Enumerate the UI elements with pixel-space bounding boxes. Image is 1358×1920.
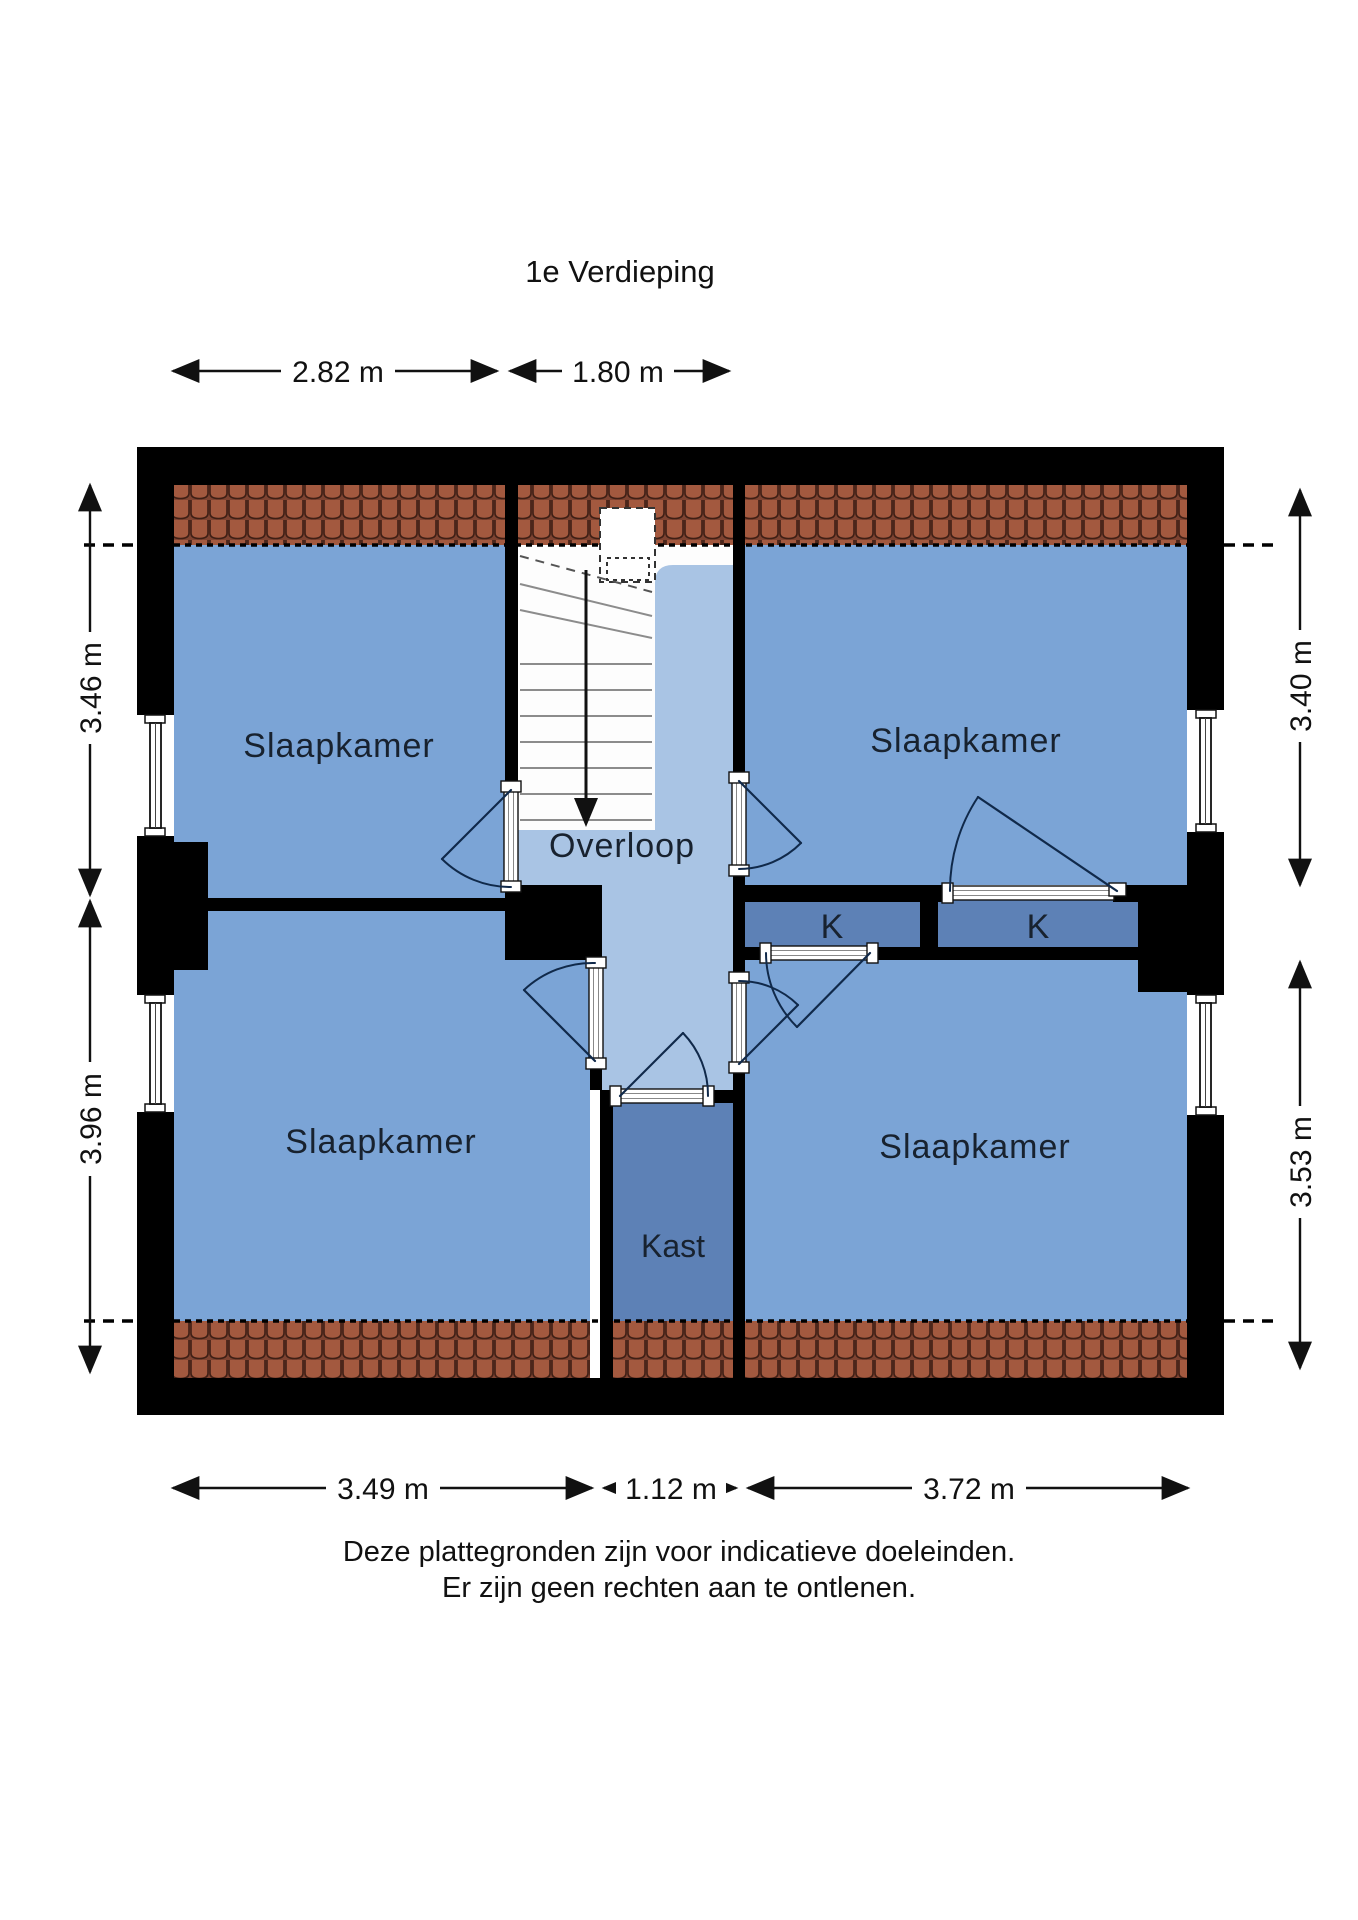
- dimension-right-top: 3.40 m: [1285, 640, 1318, 732]
- footer-disclaimer-line1: Deze plattegronden zijn voor indicatieve…: [343, 1536, 1015, 1568]
- wall-kast-left: [600, 1090, 613, 1378]
- dimension-bottom-middle: 1.12 m: [625, 1473, 717, 1506]
- room-label-bedroom-bottom-left: Slaapkamer: [285, 1123, 476, 1161]
- wall-junction-block: [505, 885, 602, 960]
- room-label-bedroom-top-right: Slaapkamer: [870, 722, 1061, 760]
- dimension-left-top: 3.46 m: [75, 642, 108, 734]
- dimension-bottom-left: 3.49 m: [337, 1473, 429, 1506]
- roof-hatch-bottom-left: [174, 1321, 590, 1378]
- floor-plan: 2.82 m 1.80 m 3.46 m 3.96 m 3.40 m 3.53 …: [0, 0, 1358, 1920]
- roof-hatch-top-right: [745, 485, 1188, 545]
- wall-corridor-right-upper: [733, 447, 745, 777]
- wall-outer-top: [137, 447, 1224, 485]
- window: [137, 715, 174, 836]
- room-label-bedroom-top-left: Slaapkamer: [243, 727, 434, 765]
- wall-outer-bottom: [137, 1378, 1224, 1415]
- footer-disclaimer-line2: Er zijn geen rechten aan te ontlenen.: [442, 1572, 916, 1604]
- room-label-k-right: K: [1027, 908, 1050, 946]
- roof-hatch-bottom-middle: [613, 1321, 733, 1378]
- wall-stairwell-left: [505, 485, 518, 788]
- roof-hatch-top-left: [174, 485, 505, 545]
- page-title: 1e Verdieping: [525, 254, 715, 289]
- room-bedroom-bottom-left: [174, 911, 590, 1321]
- dimension-right-bottom: 3.53 m: [1285, 1116, 1318, 1208]
- floorplan-page: 2.82 m 1.80 m 3.46 m 3.96 m 3.40 m 3.53 …: [0, 0, 1358, 1920]
- room-label-kast: Kast: [641, 1228, 705, 1264]
- dimension-bottom-right: 3.72 m: [923, 1473, 1015, 1506]
- wall-right-block: [1138, 885, 1188, 992]
- wall-left-rooms-divider: [174, 898, 508, 911]
- dimension-left-bottom: 3.96 m: [75, 1073, 108, 1165]
- room-label-bedroom-bottom-right: Slaapkamer: [879, 1128, 1070, 1166]
- room-kast: [613, 1103, 733, 1321]
- wall-k-divider: [920, 900, 938, 947]
- wall-left-protrusion: [137, 842, 208, 970]
- chimney-outline: [600, 508, 655, 582]
- wall-k-top-left-segment: [733, 885, 949, 902]
- window: [1187, 995, 1224, 1115]
- wall-kast-right: [733, 1066, 745, 1378]
- window: [1187, 710, 1224, 832]
- roof-hatch-bottom-right: [745, 1321, 1188, 1378]
- room-label-overloop: Overloop: [549, 827, 695, 865]
- dimension-top-right: 1.80 m: [572, 356, 664, 389]
- wall-outer-right: [1187, 447, 1224, 1415]
- room-bedroom-top-right: [745, 545, 1188, 885]
- room-label-k-left: K: [821, 908, 844, 946]
- window: [137, 995, 174, 1112]
- dimension-top-left: 2.82 m: [292, 356, 384, 389]
